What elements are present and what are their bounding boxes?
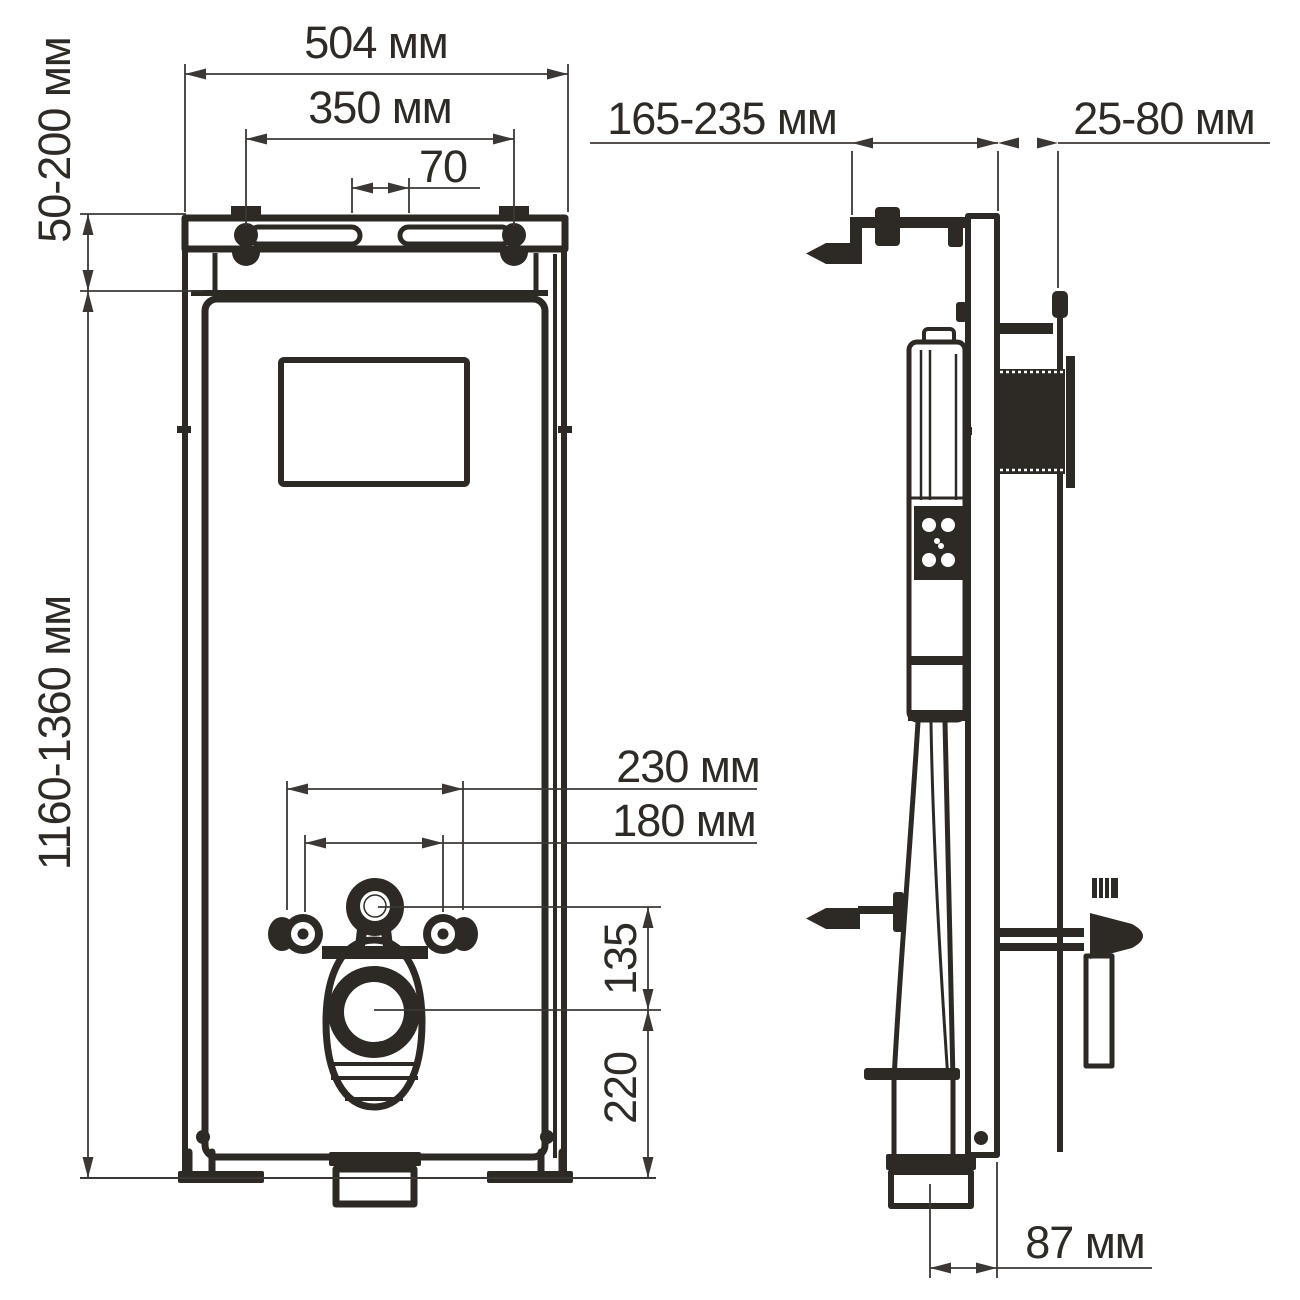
downpipe-right-edge	[945, 722, 953, 1156]
rail-joint-left	[177, 426, 191, 433]
outlet-bell	[1090, 913, 1143, 959]
front-view	[177, 206, 573, 1204]
dim-label-wall-range: 25-80 мм	[1073, 93, 1254, 144]
frame-post	[968, 216, 997, 1155]
toilet-outlet-connection	[1000, 878, 1143, 1066]
dim-wall-range: 25-80 мм	[998, 93, 1270, 288]
tank-band	[908, 656, 966, 665]
wall-bracket-cap	[1052, 291, 1068, 318]
dim-label-top-range: 50-200 мм	[29, 37, 80, 243]
anchor-bracket	[893, 892, 904, 932]
access-window	[281, 360, 467, 484]
dim-label-bolt-span: 350 мм	[308, 82, 451, 133]
outlet-plate	[1086, 956, 1112, 1066]
fixing-stud-right	[423, 914, 478, 954]
adjustment-slot-right	[400, 227, 510, 244]
slot-bolt-left	[234, 223, 258, 247]
pivot-bolt	[974, 1131, 988, 1145]
water-inlet-assembly	[806, 207, 966, 264]
dim-label-width: 504 мм	[304, 17, 447, 68]
side-foot-collar	[886, 1154, 976, 1170]
wall-plate	[1066, 356, 1075, 488]
panel-clip-right	[540, 1130, 554, 1144]
dim-bolt-span-350: 350 мм	[246, 82, 514, 226]
anchor-screw-top	[806, 243, 862, 264]
dim-slot-span-70: 70	[352, 141, 480, 213]
dim-height-range: 1160-1360 мм	[29, 291, 94, 1178]
drain-opening	[344, 982, 404, 1042]
elbow-collar	[864, 1068, 960, 1080]
dim-label-drain-to-floor: 220	[595, 1052, 646, 1124]
side-floor-drain	[891, 1172, 971, 1206]
rail-joint-right	[558, 426, 572, 433]
dim-depth-range: 165-235 мм	[590, 93, 998, 215]
technical-drawing-canvas: 504 мм 350 мм 70 50-200 мм 1160-1360 мм	[0, 0, 1300, 1300]
dim-label-stud-inner: 180 мм	[612, 795, 755, 846]
slot-bolt-right	[502, 223, 526, 247]
floor-drain-box	[336, 1169, 414, 1204]
dim-label-foot-offset: 87 мм	[1025, 1217, 1144, 1268]
lower-anchor	[806, 892, 904, 932]
drain-flange	[322, 946, 428, 959]
inlet-valve	[875, 207, 900, 246]
dim-label-eye-to-drain: 135	[595, 923, 646, 995]
toilet-frame-installation-diagram: 504 мм 350 мм 70 50-200 мм 1160-1360 мм	[0, 0, 1300, 1300]
drain-box-collar	[329, 1152, 421, 1166]
bolt-head-left	[232, 252, 260, 266]
outlet-bar-bottom	[1000, 943, 1084, 951]
post-lug-1	[956, 302, 967, 322]
dim-drain-to-floor: 220	[595, 1010, 654, 1178]
dim-label-slot-span: 70	[419, 141, 467, 192]
dim-label-depth-range: 165-235 мм	[607, 93, 837, 144]
dim-top-range: 50-200 мм	[29, 37, 203, 291]
dim-label-stud-outer: 230 мм	[616, 741, 759, 792]
wall-spacer-block	[1000, 369, 1065, 474]
cistern	[908, 329, 966, 721]
outlet-bar-top	[1000, 928, 1084, 937]
panel-clip-left	[196, 1130, 210, 1144]
inlet-union	[948, 221, 963, 247]
bolt-head-right	[500, 252, 528, 266]
upper-bracket-arm	[1000, 323, 1053, 334]
downpipe-left-edge	[894, 722, 918, 1156]
dim-label-height-range: 1160-1360 мм	[29, 596, 80, 870]
tank-bottom-band	[908, 710, 966, 721]
fixing-stud-left	[268, 914, 323, 954]
anchor-screw-bottom	[806, 908, 860, 929]
adjustment-slot-left	[250, 227, 360, 244]
side-view	[806, 207, 1143, 1206]
